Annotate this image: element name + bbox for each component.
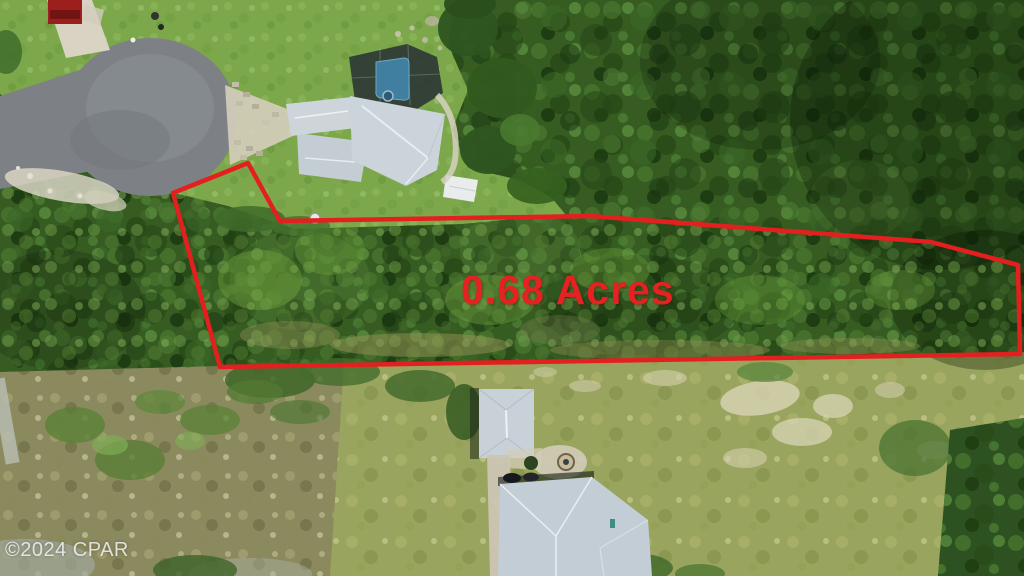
- watermark: ©2024 CPAR: [5, 539, 129, 562]
- spa: [383, 91, 393, 101]
- acreage-label: 0.68 Acres: [461, 267, 675, 314]
- aerial-property-photo: 0.68 Acres ©2024 CPAR: [0, 0, 1024, 576]
- red-truck: [48, 0, 82, 24]
- garage: [470, 388, 534, 459]
- parked-vehicle: [523, 473, 539, 482]
- round-bush: [524, 456, 538, 470]
- parked-vehicle: [503, 473, 521, 483]
